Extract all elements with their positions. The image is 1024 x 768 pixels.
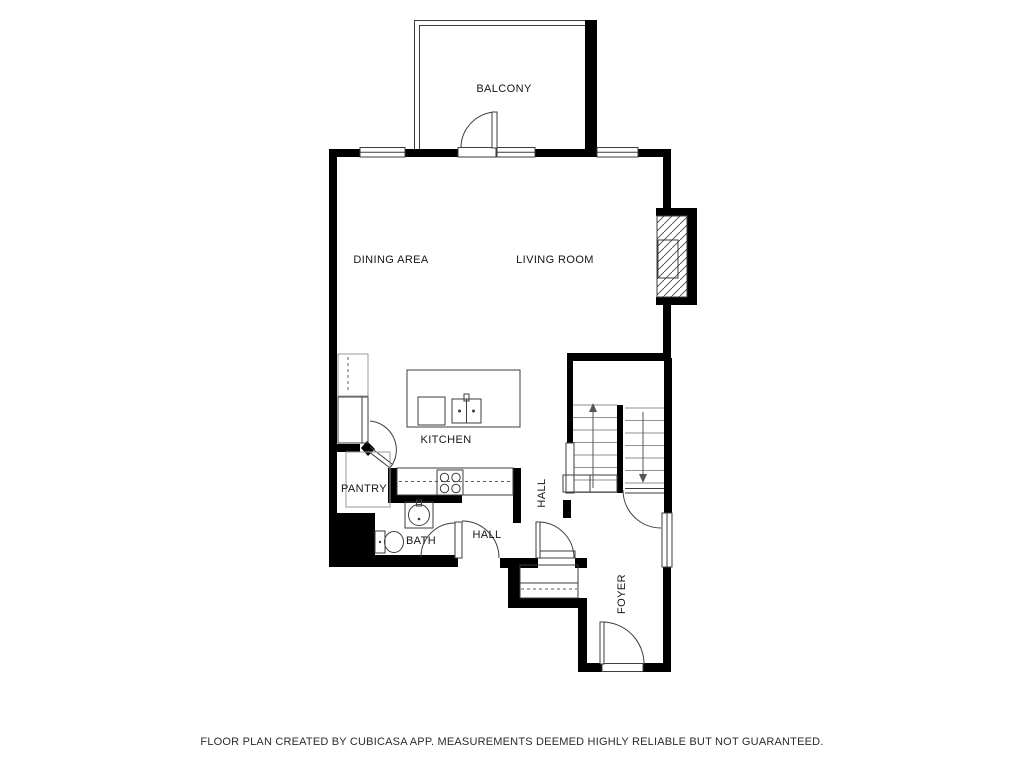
- window-icon: [497, 148, 535, 158]
- room-label-hall-lower: HALL: [472, 529, 501, 541]
- railing-icon: [566, 443, 574, 493]
- floor-plan-page: BALCONY DINING AREA LIVING ROOM KITCHEN …: [0, 0, 1024, 768]
- door-swing-icon: [368, 421, 396, 468]
- door-swing-icon: [458, 112, 497, 157]
- room-label-dining-area: DINING AREA: [353, 254, 429, 266]
- stair-treads: [625, 408, 664, 493]
- staircase: [563, 403, 664, 493]
- room-label-kitchen: KITCHEN: [420, 434, 471, 446]
- stair-treads: [573, 405, 617, 493]
- refrigerator-icon: [338, 397, 368, 443]
- room-label-hall-upper: HALL: [536, 478, 548, 507]
- dishwasher-icon: [338, 354, 368, 396]
- window-icon: [597, 148, 638, 158]
- door-leaf: [600, 622, 604, 664]
- door-threshold: [539, 551, 575, 558]
- footer-disclaimer: FLOOR PLAN CREATED BY CUBICASA APP. MEAS…: [0, 736, 1024, 748]
- door-leaf: [492, 112, 497, 148]
- fireplace-icon: [656, 208, 697, 305]
- pantry-outline: [346, 452, 390, 507]
- toilet-icon: [375, 531, 404, 553]
- door-swing-icon: [536, 522, 575, 558]
- stairs-down-arrow-icon: [639, 412, 647, 483]
- door-swing-icon: [623, 490, 661, 528]
- counter: [397, 468, 513, 495]
- sink-icon: [405, 500, 433, 528]
- room-label-foyer: FOYER: [616, 574, 628, 614]
- cooktop-icon: [437, 470, 463, 495]
- floor-plan-canvas: BALCONY DINING AREA LIVING ROOM KITCHEN …: [0, 0, 1024, 768]
- door-threshold: [458, 148, 496, 158]
- room-label-living-room: LIVING ROOM: [516, 254, 594, 266]
- door-swing-icon: [600, 622, 644, 672]
- room-label-pantry: PANTRY: [341, 483, 387, 495]
- window-icon: [360, 148, 405, 158]
- room-label-balcony: BALCONY: [476, 83, 532, 95]
- room-labels: BALCONY DINING AREA LIVING ROOM KITCHEN …: [341, 83, 628, 614]
- door-leaf: [455, 522, 462, 558]
- closet-icon: [520, 565, 578, 598]
- sink-icon: [452, 394, 481, 423]
- balcony-right-wall: [585, 20, 597, 150]
- door-threshold: [602, 664, 643, 672]
- window-icon: [662, 513, 672, 567]
- door-leaf: [536, 522, 540, 558]
- room-label-bath: BATH: [406, 535, 436, 547]
- kitchen-island-icon: [407, 370, 520, 427]
